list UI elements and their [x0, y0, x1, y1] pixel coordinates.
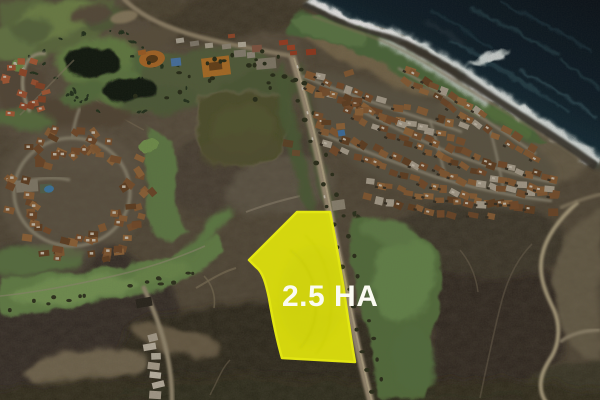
svg-text:2.5 HA: 2.5 HA: [282, 280, 378, 313]
